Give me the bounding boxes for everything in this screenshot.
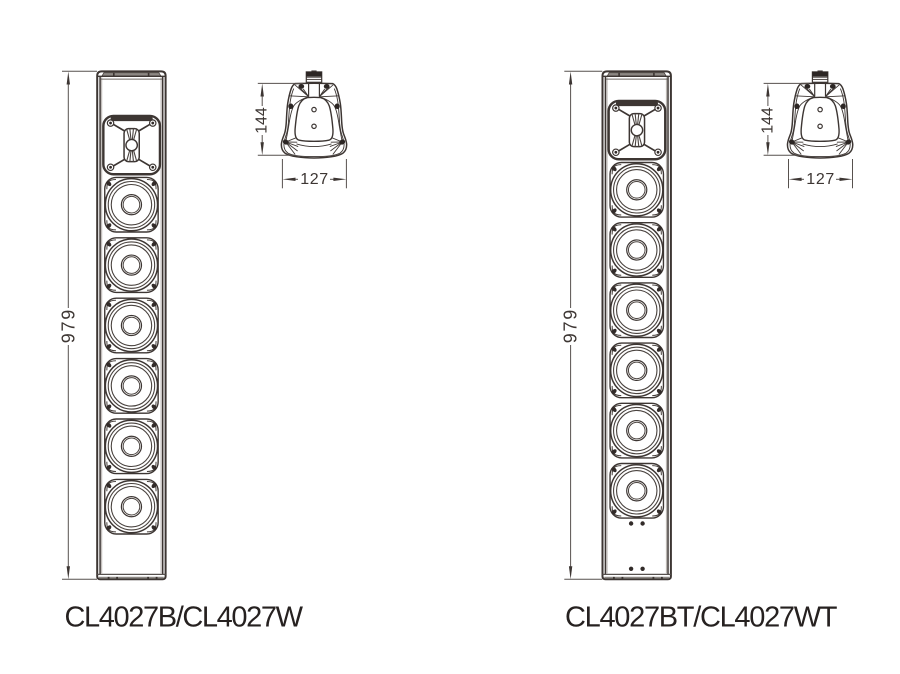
svg-text:979: 979 [561,310,581,344]
svg-text:144: 144 [254,107,271,134]
svg-text:127: 127 [300,171,328,188]
svg-text:144: 144 [759,107,776,134]
svg-text:979: 979 [58,310,78,344]
svg-text:CL4027BT/CL4027WT: CL4027BT/CL4027WT [565,602,838,634]
svg-text:CL4027B/CL4027W: CL4027B/CL4027W [65,602,304,634]
svg-text:127: 127 [806,171,834,188]
